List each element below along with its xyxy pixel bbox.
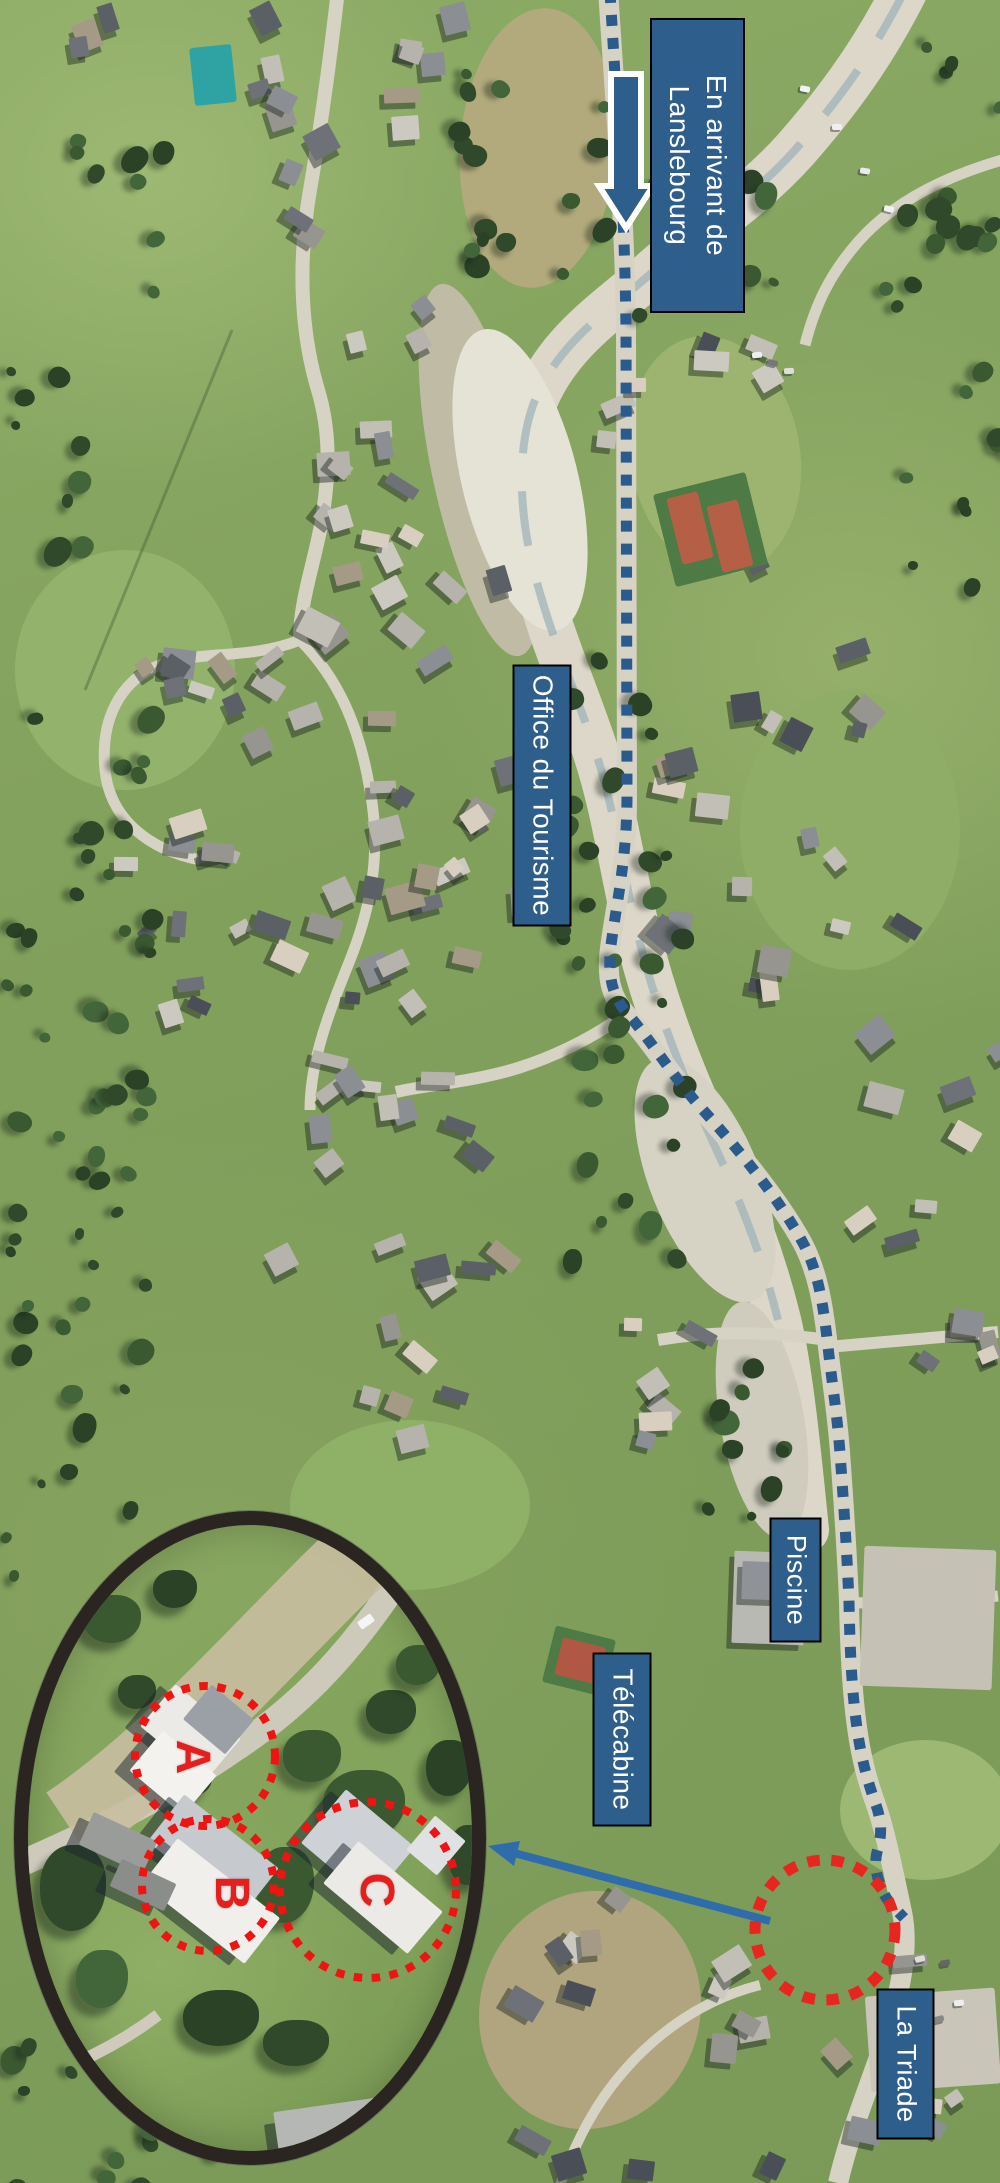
building-a-circle: [135, 1686, 275, 1826]
label-office-du-tourisme: Office du Tourisme: [513, 665, 572, 927]
label-la-triade: La Triade: [877, 1989, 935, 2140]
magnifier-highlights: [28, 1525, 472, 2151]
label-piscine: Piscine: [770, 1518, 822, 1643]
building-c-circle: [280, 1802, 456, 1978]
magnifier-pointer-arrow: [488, 1841, 770, 1921]
magnifier-inset: A B C: [14, 1511, 486, 2165]
label-telecabine: Télécabine: [593, 1653, 652, 1827]
building-b-circle: [142, 1819, 274, 1951]
label-arrival-line2: Lanslebourg: [661, 75, 697, 256]
label-arrival-from-lanslebourg: En arrivant de Lanslebourg: [650, 18, 745, 313]
aerial-map: A B C En arrivant de Lanslebourg Office …: [0, 0, 1000, 2183]
label-arrival-line1: En arrivant de: [698, 75, 734, 256]
la-triade-highlight-circle: [755, 1860, 895, 2000]
arrival-direction-arrow-icon: [599, 74, 653, 228]
